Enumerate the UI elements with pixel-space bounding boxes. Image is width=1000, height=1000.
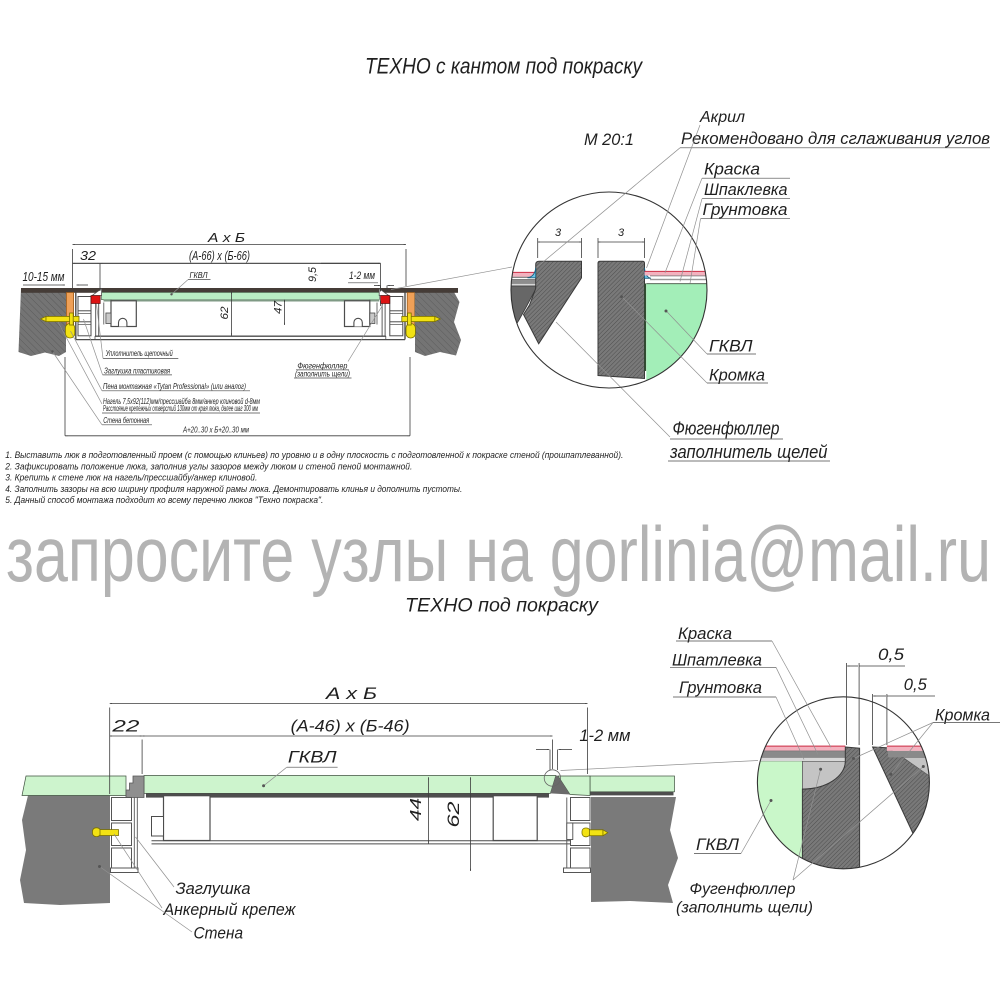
- svg-text:Фюгенфюллер: Фюгенфюллер: [673, 419, 780, 439]
- svg-text:Акрил: Акрил: [699, 109, 745, 126]
- svg-text:(А-66) х (Б-66): (А-66) х (Б-66): [189, 248, 250, 263]
- svg-text:Заглушка пластиковая: Заглушка пластиковая: [104, 367, 170, 376]
- svg-text:ГКВЛ: ГКВЛ: [190, 271, 208, 280]
- svg-text:Пена монтажная «Tytan Professi: Пена монтажная «Tytan Professional» (или…: [103, 382, 246, 391]
- svg-text:10-15 мм: 10-15 мм: [23, 270, 65, 284]
- svg-text:М 20:1: М 20:1: [584, 130, 634, 149]
- svg-text:Расстояние крепежных отверстий: Расстояние крепежных отверстий 130мм от …: [103, 404, 258, 413]
- svg-text:Стена бетонная: Стена бетонная: [103, 416, 149, 425]
- svg-text:ГКВЛ: ГКВЛ: [709, 337, 753, 356]
- svg-text:(заполнить щели): (заполнить щели): [295, 370, 350, 379]
- svg-text:1-2 мм: 1-2 мм: [579, 726, 630, 745]
- svg-text:1-2 мм: 1-2 мм: [349, 270, 375, 282]
- svg-text:Рекомендовано для сглаживания: Рекомендовано для сглаживания углов: [681, 130, 990, 148]
- svg-text:(заполнить щели): (заполнить щели): [676, 900, 813, 917]
- svg-text:запросите узлы на gorlinia@mai: запросите узлы на gorlinia@mail.ru: [6, 510, 991, 598]
- svg-text:44: 44: [408, 798, 425, 821]
- svg-text:Кромка: Кромка: [935, 707, 990, 725]
- svg-text:Кромка: Кромка: [709, 366, 765, 385]
- svg-text:Шпаклевка: Шпаклевка: [704, 181, 788, 199]
- svg-text:62: 62: [444, 801, 463, 828]
- svg-text:5. Данный способ монтажа подхо: 5. Данный способ монтажа подходит ко все…: [5, 495, 323, 505]
- svg-text:4. Заполнить зазоры на всю шир: 4. Заполнить зазоры на всю ширину профил…: [5, 484, 462, 494]
- svg-text:Фугенфюллер: Фугенфюллер: [690, 881, 796, 898]
- svg-text:Заглушка: Заглушка: [176, 880, 251, 898]
- svg-text:3: 3: [555, 227, 562, 239]
- svg-text:32: 32: [80, 248, 97, 263]
- svg-text:47: 47: [273, 300, 285, 314]
- svg-text:62: 62: [219, 307, 231, 320]
- svg-text:Уплотнитель щеточный: Уплотнитель щеточный: [105, 349, 173, 358]
- svg-text:Краска: Краска: [704, 161, 760, 179]
- svg-text:Анкерный крепеж: Анкерный крепеж: [163, 901, 297, 919]
- svg-text:(А-46) х (Б-46): (А-46) х (Б-46): [291, 717, 410, 736]
- svg-text:А х Б: А х Б: [325, 684, 377, 703]
- svg-text:ГКВЛ: ГКВЛ: [696, 836, 740, 854]
- svg-text:Стена: Стена: [194, 925, 244, 943]
- svg-text:Шпатлевка: Шпатлевка: [672, 652, 762, 670]
- svg-text:А+20..30 х Б+20..30 мм: А+20..30 х Б+20..30 мм: [182, 425, 249, 435]
- svg-text:Краска: Краска: [678, 625, 732, 643]
- svg-text:заполнитель щелей: заполнитель щелей: [669, 442, 827, 462]
- svg-text:3. Крепить к стене люк на наге: 3. Крепить к стене люк на нагель/прессша…: [5, 473, 257, 483]
- svg-text:3: 3: [618, 227, 625, 239]
- svg-text:А х Б: А х Б: [207, 230, 246, 245]
- svg-text:ГКВЛ: ГКВЛ: [288, 748, 337, 767]
- svg-text:1. Выставить люк в подготовлен: 1. Выставить люк в подготовленный проем …: [5, 450, 623, 460]
- svg-text:Грунтовка: Грунтовка: [703, 201, 788, 219]
- svg-text:0,5: 0,5: [878, 645, 905, 664]
- svg-text:ТЕХНО с кантом под покраску: ТЕХНО с кантом под покраску: [365, 54, 644, 79]
- svg-text:2. Зафиксировать положение люк: 2. Зафиксировать положение люка, заполни…: [4, 461, 412, 471]
- svg-text:ТЕХНО под покраску: ТЕХНО под покраску: [405, 596, 600, 617]
- svg-text:9,5: 9,5: [307, 266, 319, 282]
- svg-text:0,5: 0,5: [904, 675, 928, 694]
- svg-text:Грунтовка: Грунтовка: [679, 679, 762, 697]
- svg-text:22: 22: [111, 717, 140, 736]
